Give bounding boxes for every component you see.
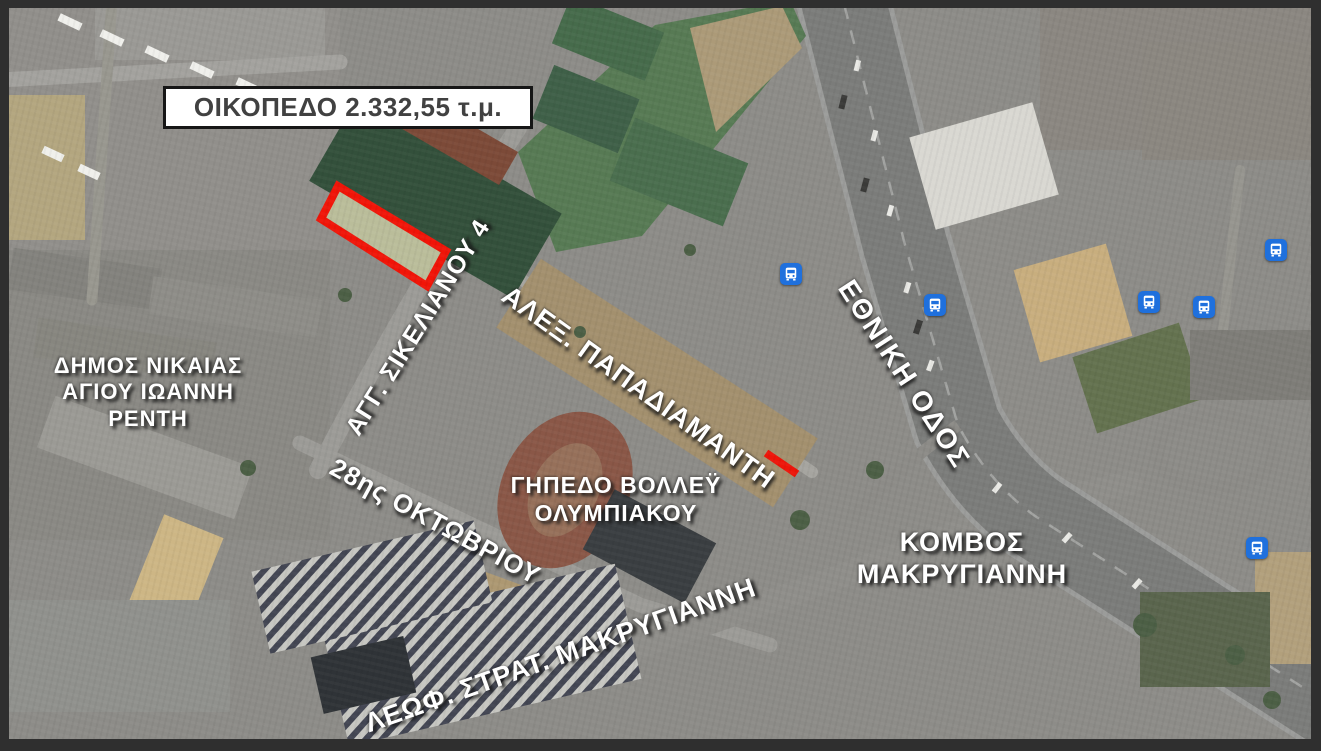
annotation-overlay: ΟΙΚΟΠΕΔΟ 2.332,55 τ.μ. ΑΓΓ. ΣΙΚΕΛΙΑΝΟΥ 4… bbox=[0, 0, 1321, 751]
plot-area-title-box: ΟΙΚΟΠΕΔΟ 2.332,55 τ.μ. bbox=[163, 86, 533, 129]
volleyball-line2: ΟΛΥΜΠΙΑΚΟΥ bbox=[496, 500, 736, 528]
bus-stop-icon bbox=[780, 263, 802, 285]
junction-line1: ΚΟΜΒΟΣ bbox=[842, 526, 1082, 558]
street-label-papadiamanti: ΑΛΕΞ. ΠΑΠΑΔΙΑΜΑΝΤΗ bbox=[496, 279, 782, 496]
street-label-makriyanni-avenue: ΛΕΩΦ. ΣΤΡΑΤ. ΜΑΚΡΥΓΙΑΝΝΗ bbox=[361, 571, 761, 739]
municipality-line2: ΑΓΙΟΥ ΙΩΑΝΝΗ ΡΕΝΤΗ bbox=[23, 379, 273, 432]
bus-stop-icon bbox=[1193, 296, 1215, 318]
area-label-municipality: ΔΗΜΟΣ ΝΙΚΑΙΑΣ ΑΓΙΟΥ ΙΩΑΝΝΗ ΡΕΝΤΗ bbox=[23, 353, 273, 432]
plot-area-title: ΟΙΚΟΠΕΔΟ 2.332,55 τ.μ. bbox=[194, 92, 502, 123]
municipality-line1: ΔΗΜΟΣ ΝΙΚΑΙΑΣ bbox=[23, 353, 273, 379]
street-label-ethniki-odos: ΕΘΝΙΚΗ ΟΔΟΣ bbox=[831, 274, 978, 475]
area-label-makriyanni-junction: ΚΟΜΒΟΣ ΜΑΚΡΥΓΙΑΝΝΗ bbox=[842, 526, 1082, 591]
bus-stop-icon bbox=[1265, 239, 1287, 261]
junction-line2: ΜΑΚΡΥΓΙΑΝΝΗ bbox=[842, 558, 1082, 590]
bus-stop-icon bbox=[1138, 291, 1160, 313]
bus-stop-icon bbox=[924, 294, 946, 316]
volleyball-line1: ΓΗΠΕΔΟ ΒΟΛΛΕΫ bbox=[496, 472, 736, 500]
bus-stop-icon bbox=[1246, 537, 1268, 559]
street-label-sikelianou: ΑΓΓ. ΣΙΚΕΛΙΑΝΟΥ 4 bbox=[339, 214, 496, 441]
area-label-volleyball-court: ΓΗΠΕΔΟ ΒΟΛΛΕΫ ΟΛΥΜΠΙΑΚΟΥ bbox=[496, 472, 736, 527]
plot-location-map: ΟΙΚΟΠΕΔΟ 2.332,55 τ.μ. ΑΓΓ. ΣΙΚΕΛΙΑΝΟΥ 4… bbox=[0, 0, 1321, 751]
